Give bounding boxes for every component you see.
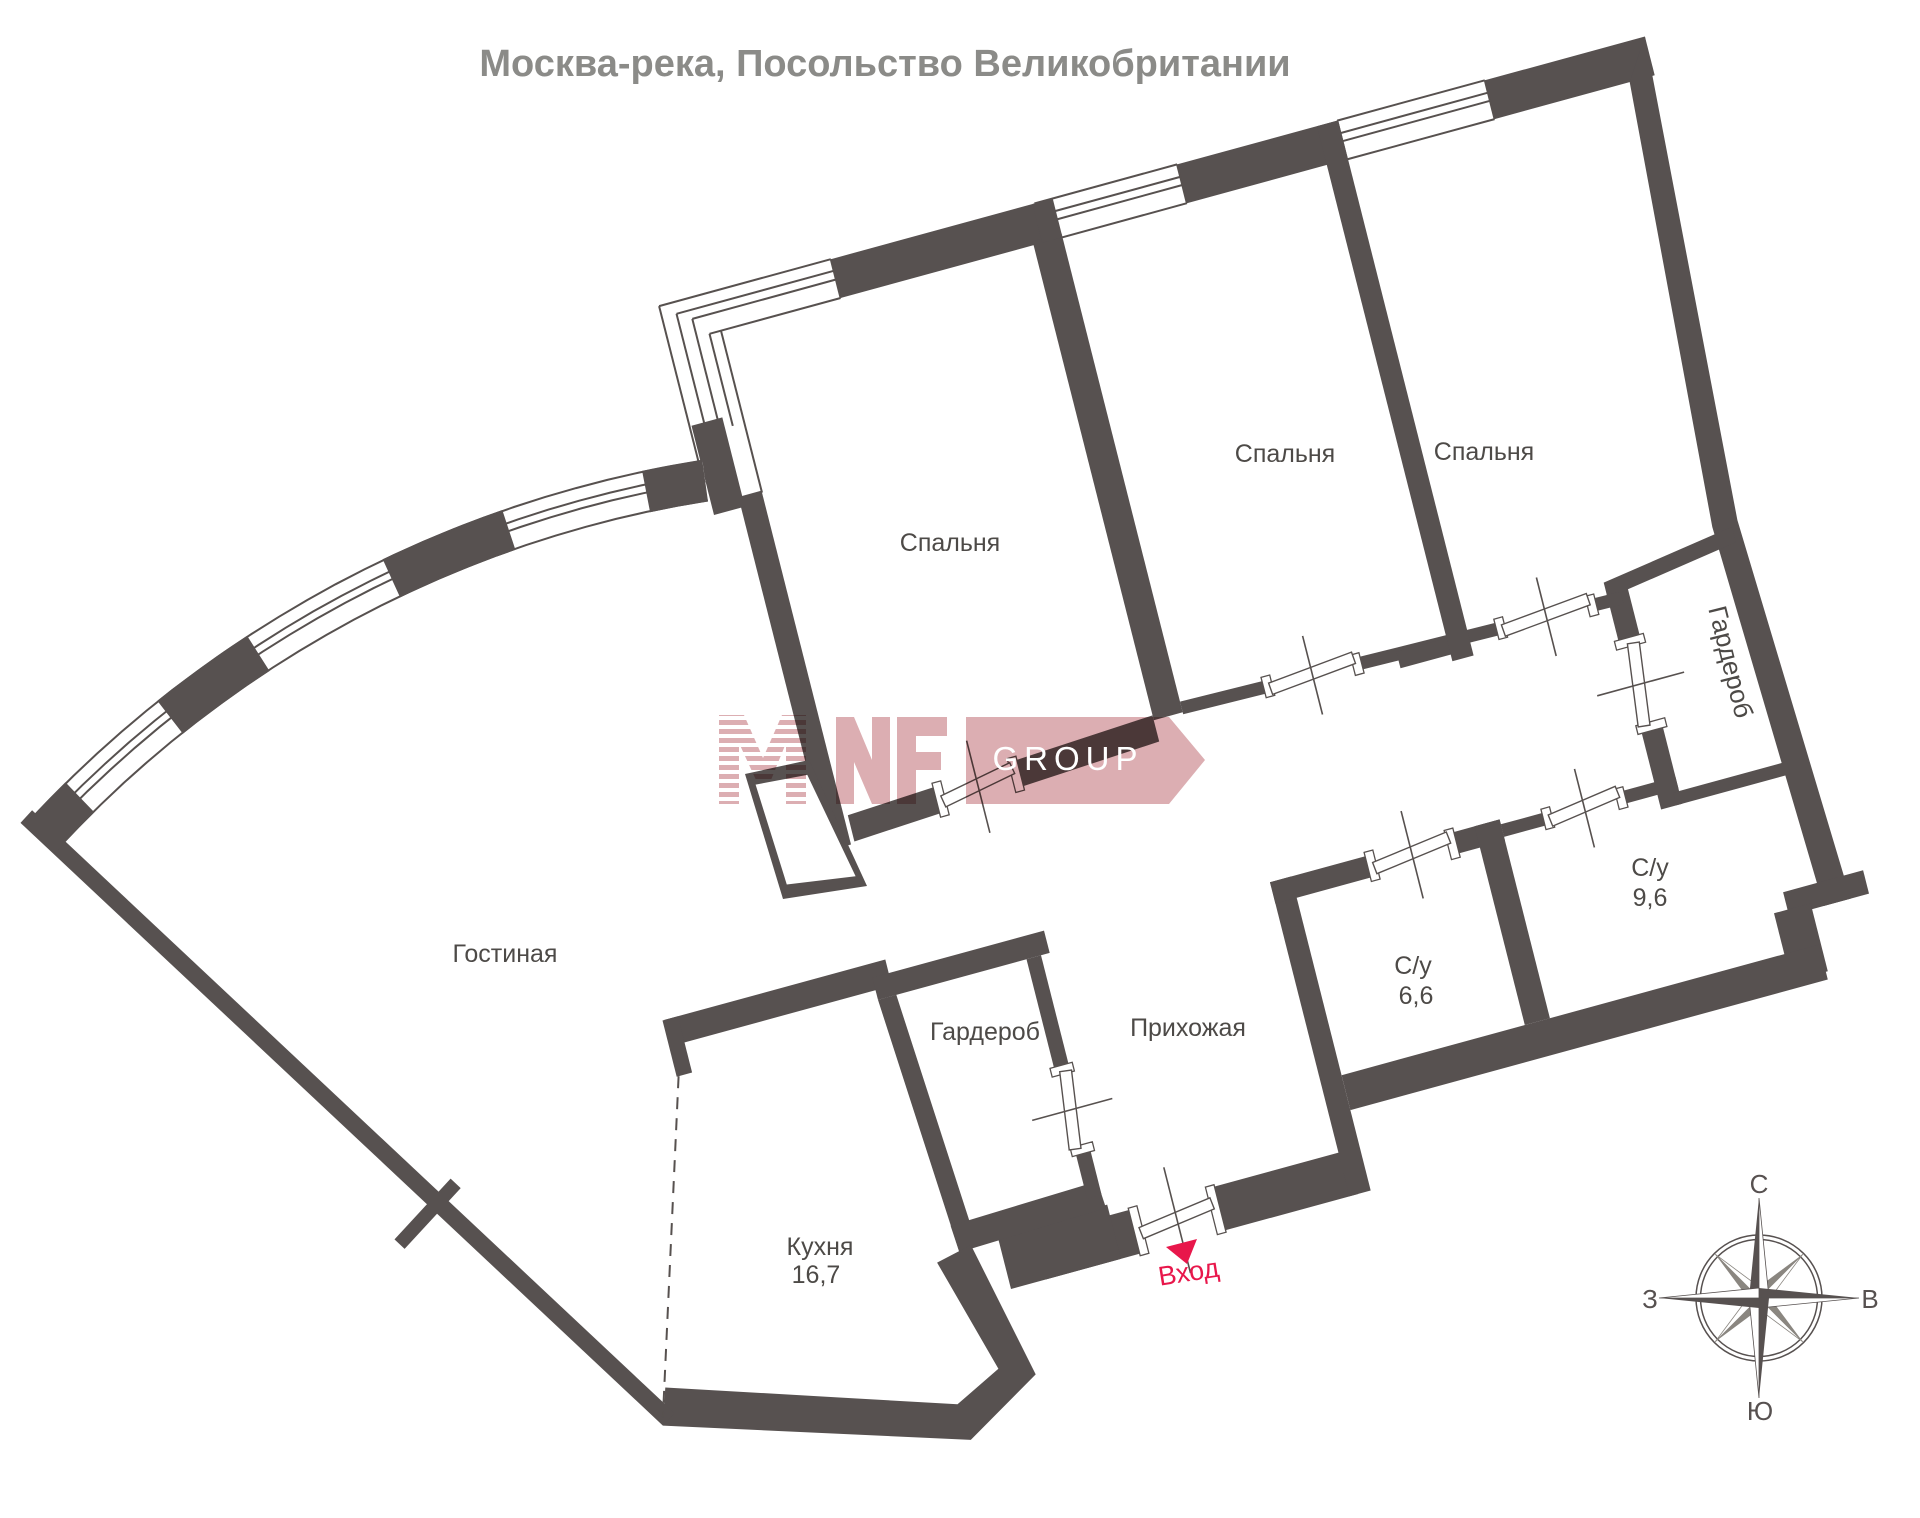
svg-text:6,6: 6,6 [1399, 982, 1434, 1010]
svg-text:9,6: 9,6 [1633, 884, 1668, 912]
svg-text:Спальня: Спальня [900, 529, 1000, 557]
svg-text:С/у: С/у [1631, 854, 1669, 882]
svg-text:Кухня: Кухня [787, 1233, 854, 1261]
svg-text:Москва-река, Посольство Велико: Москва-река, Посольство Великобритании [479, 43, 1290, 85]
svg-text:Гостиная: Гостиная [453, 940, 558, 968]
svg-text:В: В [1861, 1284, 1878, 1314]
svg-text:Гардероб: Гардероб [930, 1018, 1040, 1046]
svg-text:Спальня: Спальня [1434, 438, 1534, 466]
svg-text:Прихожая: Прихожая [1130, 1014, 1246, 1042]
svg-text:16,7: 16,7 [792, 1261, 841, 1289]
svg-text:С/у: С/у [1394, 952, 1432, 980]
svg-text:С: С [1750, 1169, 1769, 1199]
svg-text:З: З [1642, 1284, 1658, 1314]
svg-text:Ю: Ю [1747, 1396, 1773, 1426]
svg-text:GROUP: GROUP [992, 740, 1143, 777]
svg-text:Спальня: Спальня [1235, 440, 1335, 468]
